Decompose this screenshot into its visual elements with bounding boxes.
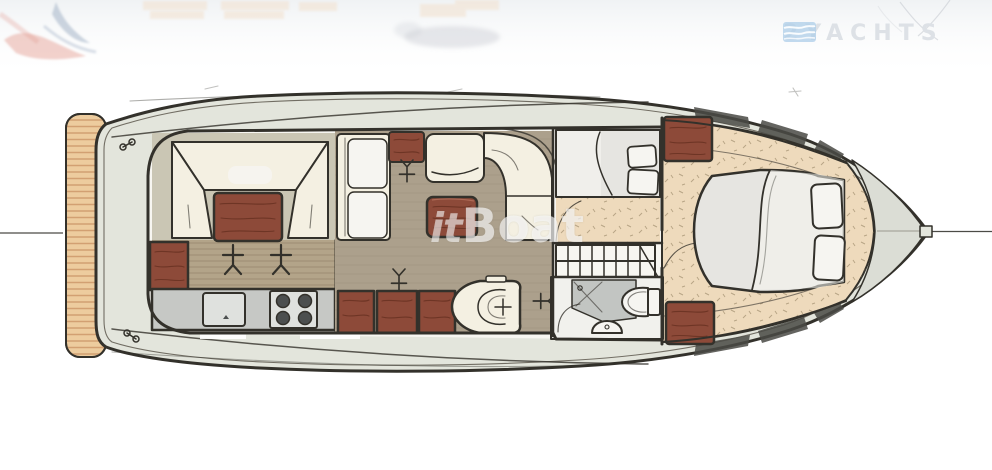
head-toilet (622, 288, 660, 317)
guest-bed (556, 130, 660, 197)
stove-burner (299, 295, 312, 308)
watermark-italic-text: it (430, 204, 462, 252)
stove-burner (299, 312, 312, 325)
stove-burner (277, 295, 290, 308)
stove-burner (277, 312, 290, 325)
striped-flag-icon (783, 21, 816, 43)
screenshot: itBoat 2YACHTS (0, 0, 992, 470)
watermark-bold-text: Boat (462, 199, 584, 254)
storage-cabinet-aft (150, 242, 188, 290)
guest-pillow (627, 169, 658, 195)
guest-pillow (627, 145, 656, 168)
galley-stove (270, 291, 317, 328)
salon-sofa-left (337, 134, 390, 240)
dinette-table (214, 193, 282, 241)
forward-master-cabin (694, 170, 845, 292)
bow-fitting (920, 226, 932, 237)
head (551, 277, 663, 339)
master-pillow (813, 235, 845, 281)
salon-storage-cabinets (338, 291, 455, 333)
itboat-watermark: itBoat (430, 203, 584, 250)
galley-sink (203, 293, 245, 326)
master-pillow (811, 183, 843, 229)
master-bed (694, 170, 845, 292)
salon-side-table (389, 132, 424, 162)
site-logo: 2YACHTS (783, 21, 944, 46)
